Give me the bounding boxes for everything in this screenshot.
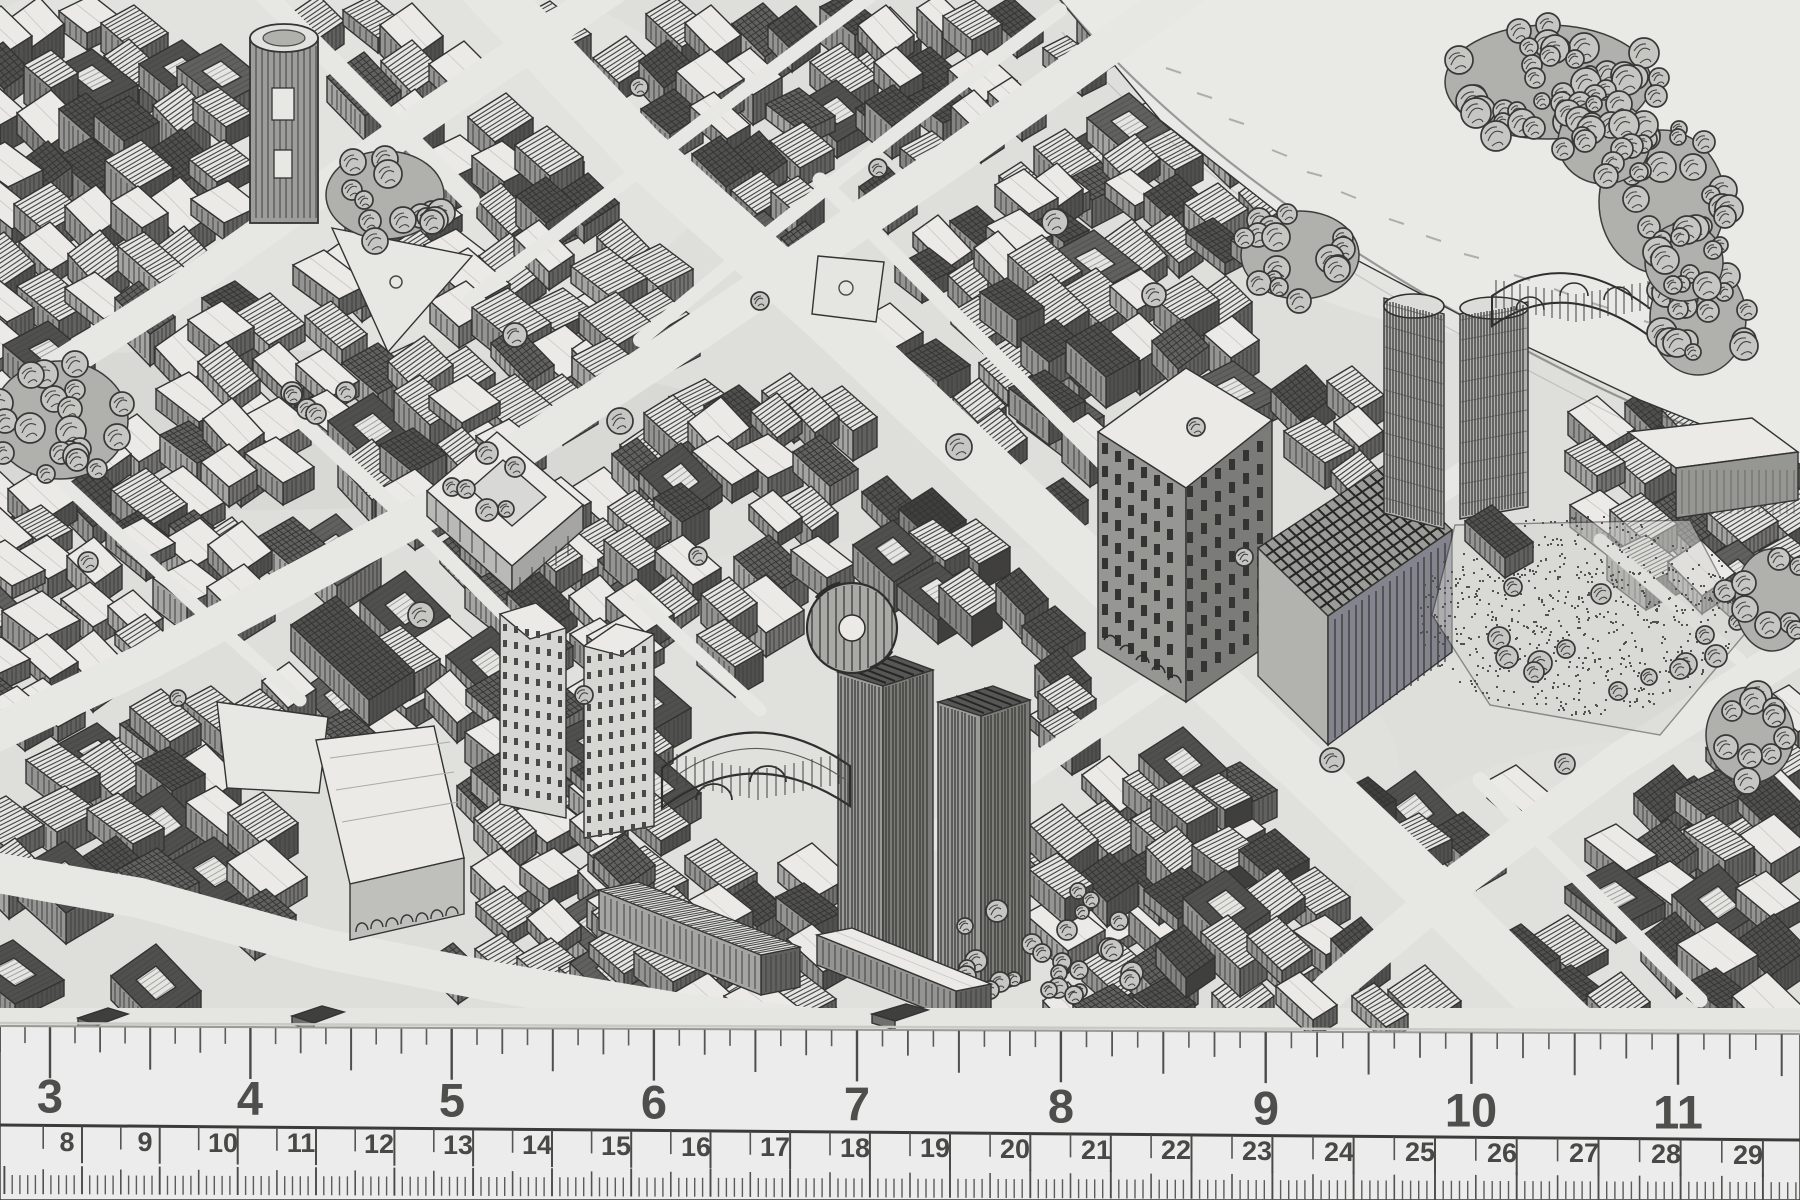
svg-text:18: 18 (840, 1133, 870, 1163)
svg-text:26: 26 (1487, 1138, 1517, 1168)
svg-text:13: 13 (443, 1130, 473, 1160)
svg-text:27: 27 (1569, 1138, 1599, 1168)
svg-text:4: 4 (237, 1071, 263, 1124)
svg-text:12: 12 (364, 1129, 394, 1159)
svg-text:3: 3 (37, 1069, 63, 1122)
svg-text:24: 24 (1324, 1137, 1354, 1167)
svg-text:6: 6 (641, 1075, 667, 1128)
svg-text:10: 10 (1445, 1083, 1497, 1136)
svg-text:15: 15 (601, 1131, 631, 1161)
svg-text:21: 21 (1081, 1135, 1111, 1165)
svg-text:25: 25 (1405, 1137, 1435, 1167)
svg-text:14: 14 (522, 1130, 552, 1160)
svg-text:17: 17 (760, 1132, 790, 1162)
svg-text:19: 19 (920, 1133, 950, 1163)
svg-text:8: 8 (59, 1127, 74, 1157)
svg-text:5: 5 (439, 1073, 465, 1126)
svg-text:10: 10 (208, 1128, 238, 1158)
svg-text:23: 23 (1242, 1136, 1272, 1166)
svg-text:11: 11 (1653, 1085, 1703, 1138)
svg-text:9: 9 (137, 1127, 152, 1157)
svg-text:9: 9 (1253, 1081, 1279, 1134)
svg-text:28: 28 (1651, 1139, 1681, 1169)
svg-text:11: 11 (287, 1128, 316, 1158)
svg-text:20: 20 (1000, 1134, 1030, 1164)
svg-text:29: 29 (1733, 1140, 1763, 1170)
svg-text:22: 22 (1161, 1135, 1191, 1165)
svg-text:7: 7 (844, 1077, 870, 1130)
svg-text:8: 8 (1048, 1079, 1074, 1132)
svg-text:16: 16 (681, 1132, 711, 1162)
